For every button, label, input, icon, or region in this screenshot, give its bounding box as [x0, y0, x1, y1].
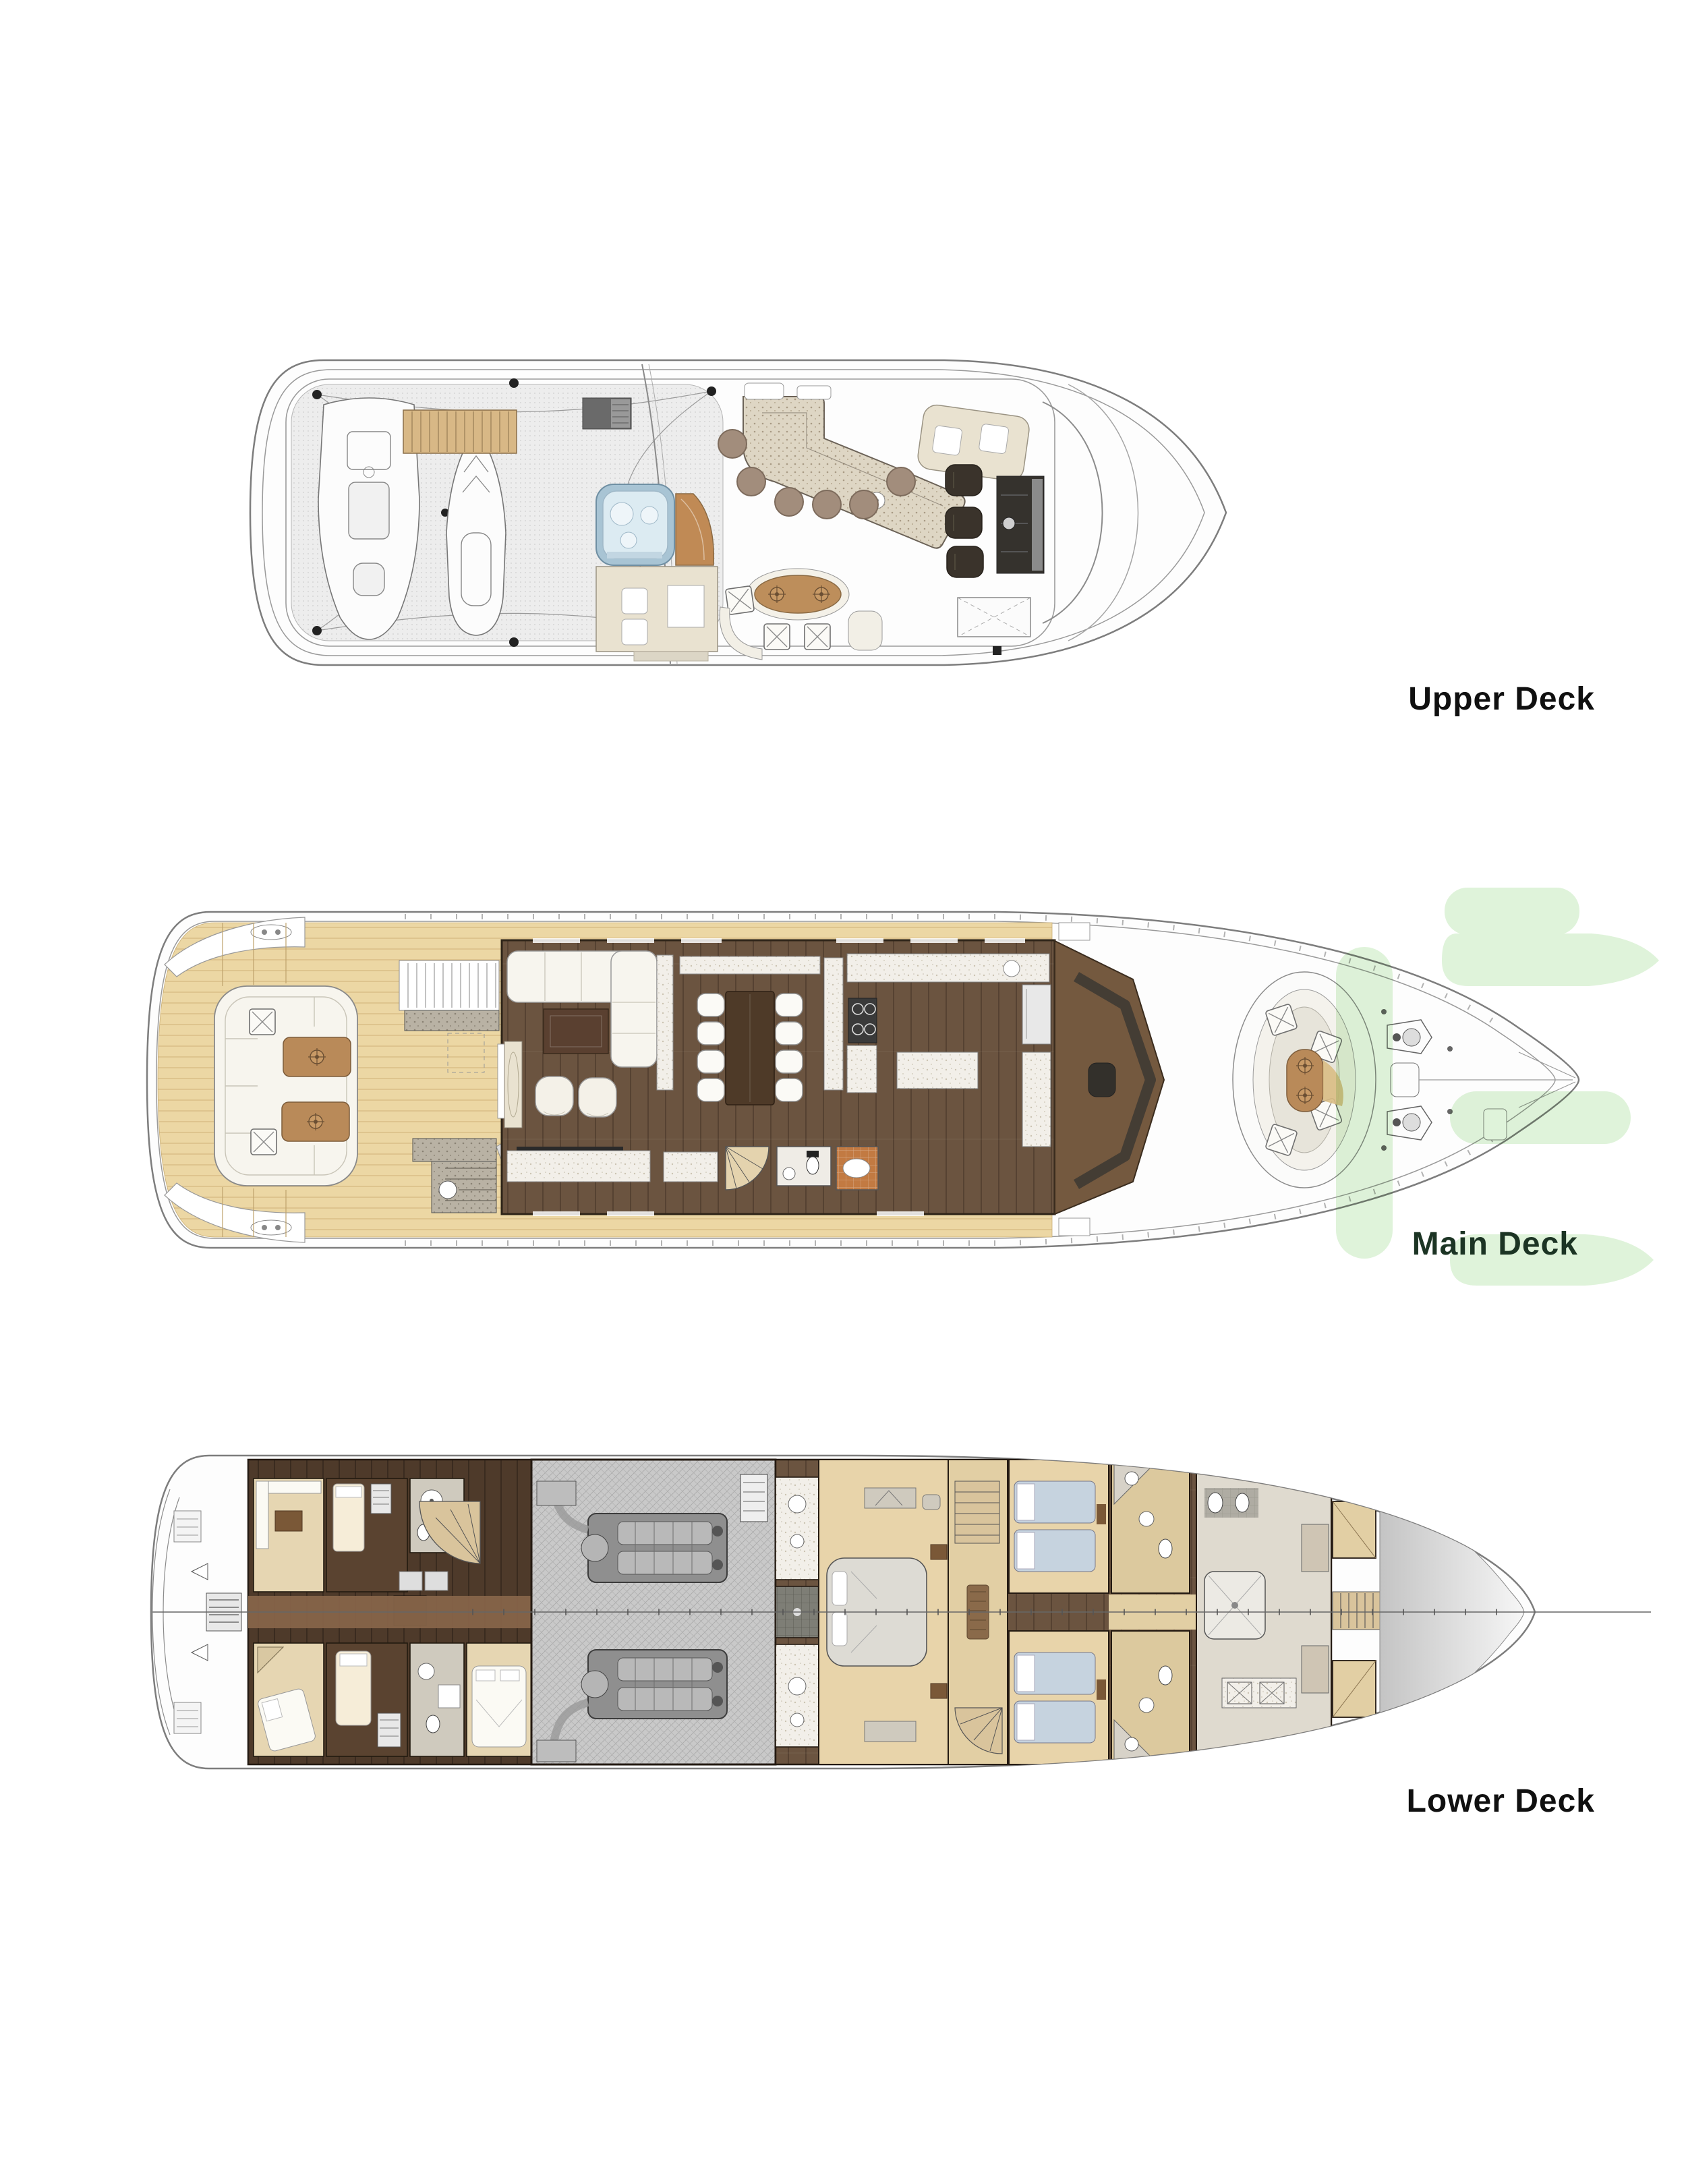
crew-cabin-bottom — [326, 1643, 407, 1756]
deck-plan-image: Upper Deck Main Deck Lower Deck — [0, 0, 1686, 2184]
lower-deck-label: Lower Deck — [1407, 1783, 1595, 1819]
engine-starboard — [581, 1650, 727, 1719]
engine-port — [581, 1514, 727, 1582]
teak-hatch — [403, 410, 517, 453]
upper-deck-plan — [250, 360, 1226, 665]
watermark-top-bar — [1442, 933, 1659, 986]
twin-cabin-port — [1009, 1460, 1109, 1593]
wet-bar-cabinet — [596, 567, 718, 661]
crew-cabin-top — [326, 1478, 407, 1592]
aft-deck-sofa — [214, 986, 357, 1186]
deck-hatch — [1391, 1063, 1419, 1097]
dining-buffet — [680, 956, 820, 974]
tv-cabinet — [507, 1147, 718, 1182]
twin-cabin-starboard — [1009, 1631, 1109, 1764]
watermark-top-small — [1445, 888, 1579, 935]
yacht-deck-plans-page: Upper Deck Main Deck Lower Deck — [0, 0, 1686, 2184]
captain-cabin — [467, 1643, 531, 1756]
credenza — [504, 1041, 522, 1128]
tv-console — [997, 476, 1044, 573]
deck-box — [583, 398, 631, 429]
foredeck-table — [1287, 1050, 1323, 1112]
upper-deck-label: Upper Deck — [1408, 681, 1595, 717]
watermark-vertical-bar — [1336, 947, 1393, 1259]
console-cabinet — [657, 955, 673, 1090]
club-chairs — [946, 465, 983, 577]
salon — [498, 938, 1055, 1216]
guest-bath-orange — [836, 1147, 878, 1190]
day-head — [777, 1147, 831, 1186]
watermark-middle-bar — [1450, 1091, 1631, 1144]
coffee-table — [544, 1009, 608, 1054]
main-deck-label: Main Deck — [1412, 1226, 1578, 1262]
jacuzzi — [596, 484, 674, 565]
crew-bath-bottom — [410, 1643, 464, 1756]
side-buffet — [824, 958, 843, 1090]
lower-deck-plan — [151, 1456, 1651, 1769]
